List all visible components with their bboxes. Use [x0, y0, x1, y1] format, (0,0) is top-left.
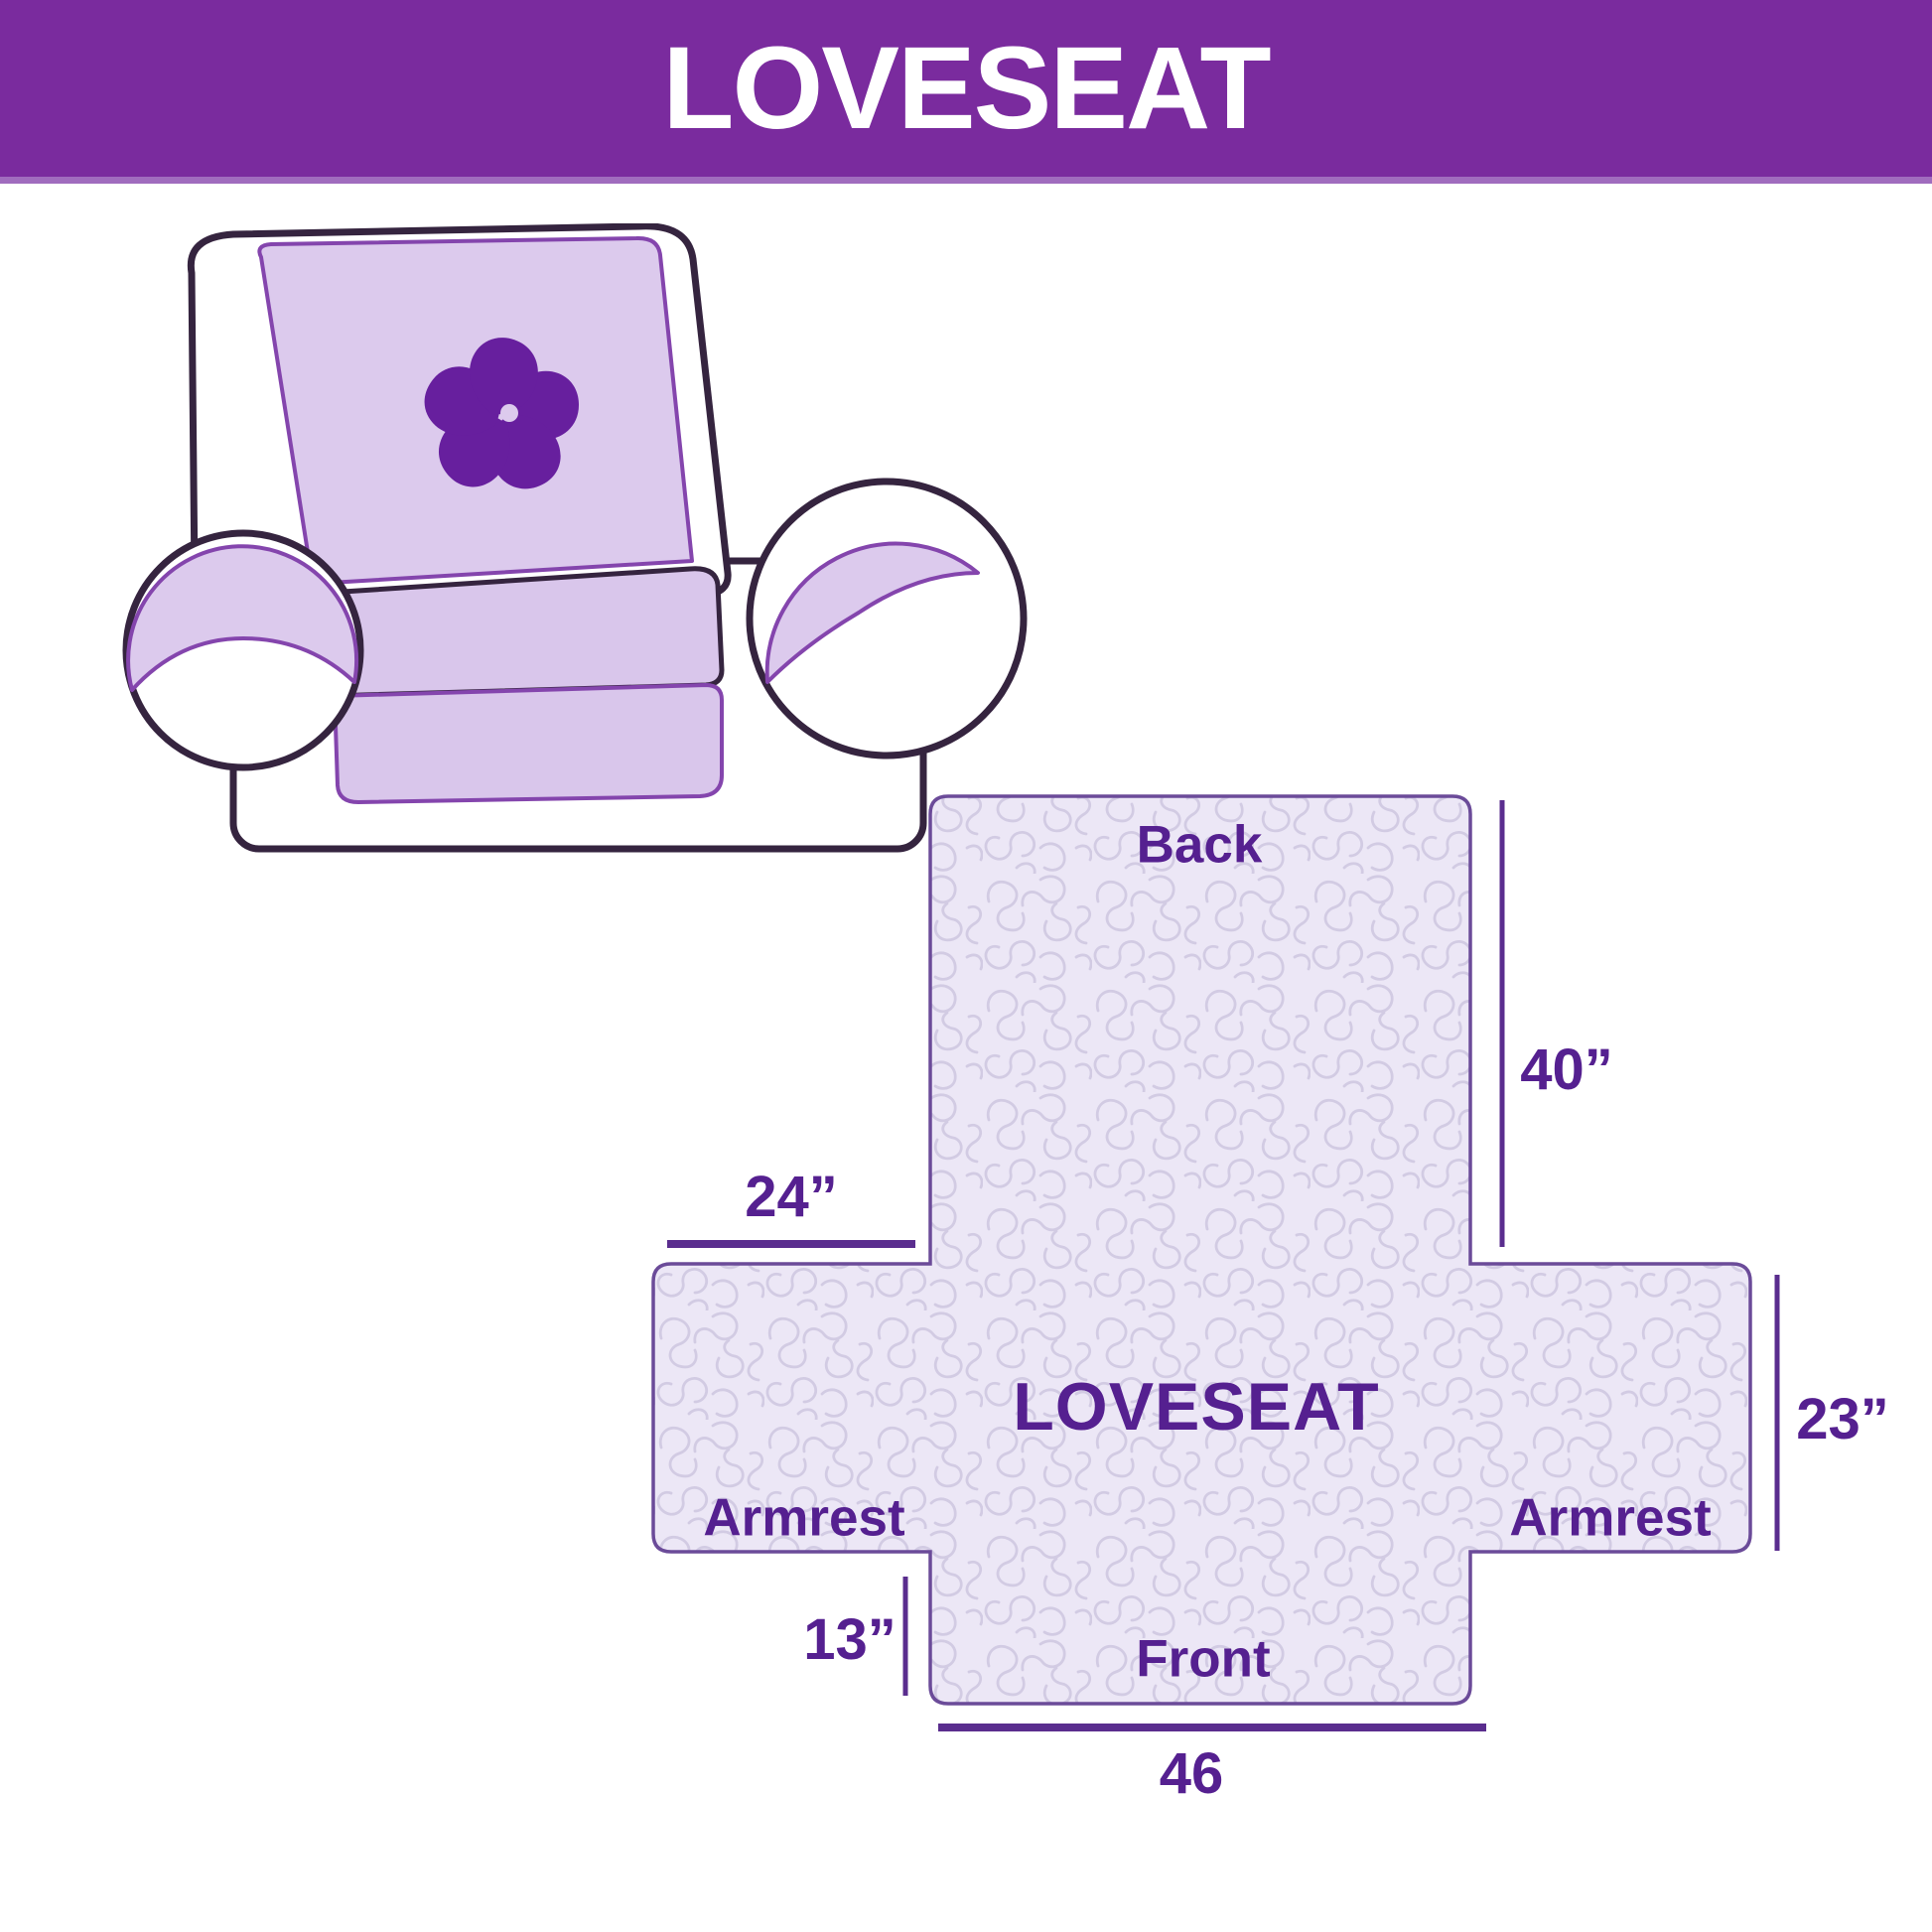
skirt-height-dimension: 13” [803, 1611, 897, 1669]
loveseat-cover-infographic: LOVESEAT [0, 0, 1932, 1932]
front-section-label: Front [1136, 1633, 1270, 1686]
back-height-dimension: 40” [1520, 1041, 1613, 1099]
armrest-left-label: Armrest [703, 1492, 904, 1545]
front-width-dimension: 46 [1160, 1745, 1224, 1803]
armrest-width-dimension: 24” [745, 1169, 838, 1226]
product-label: LOVESEAT [1013, 1373, 1379, 1441]
cover-dimension-diagram [0, 0, 1932, 1932]
seat-height-dimension: 23” [1796, 1391, 1889, 1449]
armrest-right-label: Armrest [1509, 1492, 1711, 1545]
back-section-label: Back [1137, 819, 1263, 872]
cover-shape-texture [653, 796, 1750, 1704]
